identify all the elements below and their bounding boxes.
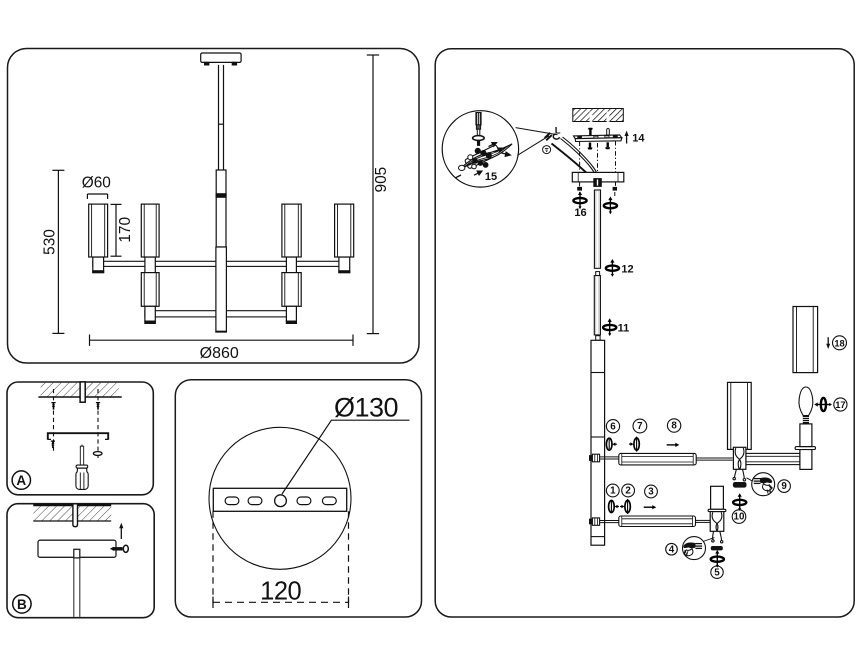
svg-text:16: 16 — [574, 207, 586, 219]
svg-text:3: 3 — [648, 487, 654, 498]
svg-text:14: 14 — [632, 133, 645, 145]
svg-text:17: 17 — [835, 400, 845, 410]
svg-text:6: 6 — [610, 421, 616, 432]
svg-text:B: B — [17, 597, 27, 612]
svg-text:1: 1 — [610, 486, 616, 497]
svg-text:10: 10 — [734, 512, 745, 523]
svg-text:170: 170 — [117, 217, 134, 243]
svg-text:12: 12 — [621, 263, 633, 275]
svg-text:15: 15 — [485, 171, 497, 183]
svg-text:905: 905 — [373, 167, 390, 193]
svg-text:5: 5 — [714, 567, 720, 578]
svg-text:4: 4 — [669, 544, 675, 555]
svg-text:11: 11 — [618, 323, 630, 335]
svg-text:Ø860: Ø860 — [200, 345, 239, 362]
svg-text:8: 8 — [671, 421, 677, 432]
svg-text:Ø130: Ø130 — [334, 392, 398, 422]
svg-text:L: L — [555, 125, 561, 136]
svg-text:120: 120 — [260, 578, 301, 606]
svg-text:9: 9 — [781, 481, 787, 492]
svg-text:7: 7 — [637, 421, 643, 432]
svg-text:2: 2 — [625, 486, 631, 497]
svg-text:530: 530 — [42, 229, 59, 255]
svg-text:A: A — [16, 473, 26, 488]
svg-text:Ø60: Ø60 — [82, 175, 111, 192]
svg-text:18: 18 — [834, 338, 844, 348]
